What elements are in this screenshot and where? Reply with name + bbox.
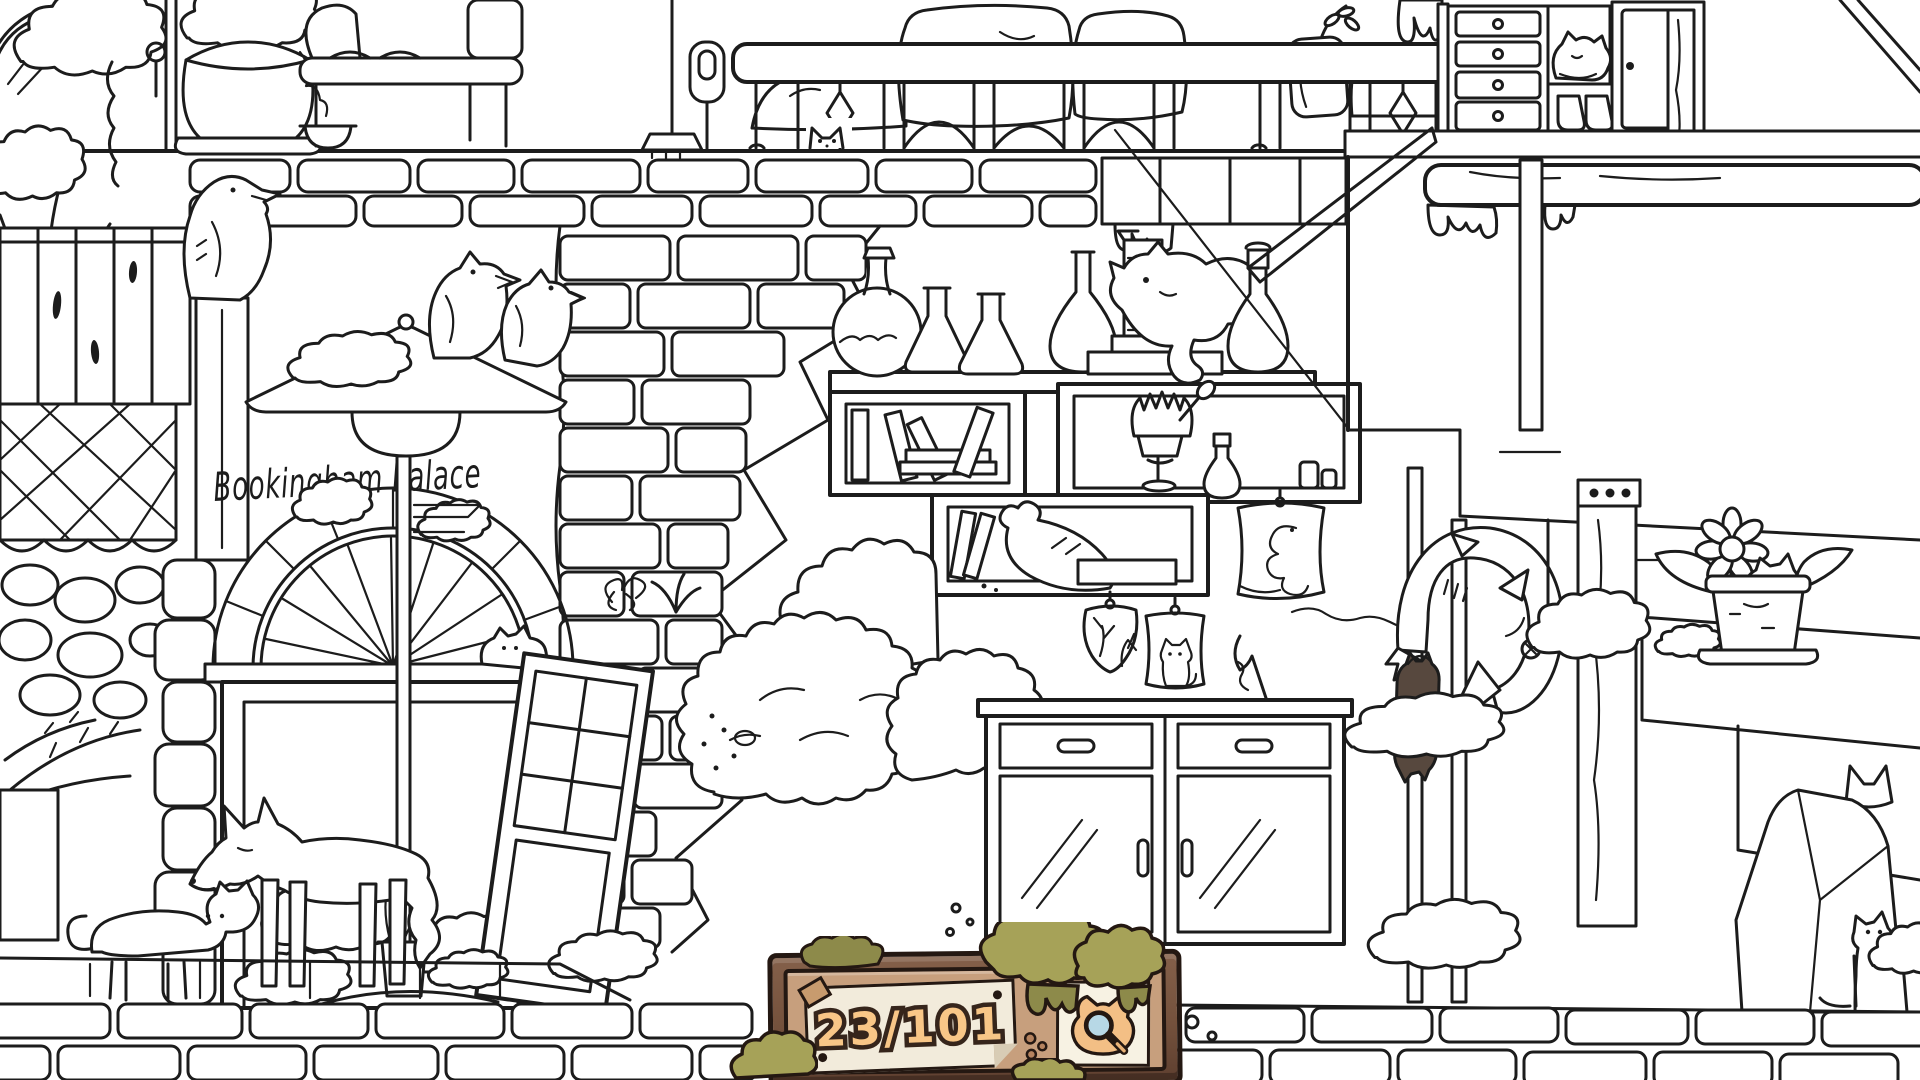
hidden-cat-balcony[interactable]: [806, 118, 852, 148]
hidden-cat-cubby[interactable]: [1548, 6, 1611, 84]
vine-strand: [107, 62, 118, 186]
erlenmeyer-flask: [959, 294, 1022, 374]
lower-plank: [0, 790, 58, 940]
hidden-cat-poster[interactable]: [1146, 598, 1204, 688]
dragon-poster: [1238, 490, 1324, 599]
raven-icon: [184, 176, 280, 300]
fern: [5, 712, 140, 800]
book-shelf: [830, 392, 1025, 495]
bench: [300, 0, 522, 146]
upper-post: [1668, 10, 1694, 150]
tool-shelf: [1058, 378, 1360, 502]
bush: [1368, 899, 1520, 968]
shield-poster: [1084, 592, 1137, 672]
plank-fence: [0, 228, 190, 404]
left-structures: [0, 126, 190, 940]
ham-shelf: [932, 495, 1208, 595]
hanging-foliage: [14, 0, 166, 75]
progress-plaque: 23/101 23/101: [767, 949, 1182, 1080]
cabinet: [947, 700, 1353, 944]
stone-pile: [0, 565, 170, 718]
ivy-clump: [0, 126, 85, 199]
brick-band: [190, 158, 1575, 251]
corner-beam: [1840, 0, 1920, 92]
awning-lattice: [0, 404, 176, 551]
magnifier-hint-button[interactable]: [1056, 980, 1150, 1066]
boots: [1558, 96, 1612, 130]
cats-found-counter: 23/101 23/101: [814, 1001, 1007, 1053]
upper-floor: [0, 0, 1920, 186]
scene-canvas: Bookingham Palace: [0, 0, 1920, 1080]
cat-magnifier-icon: [1065, 984, 1141, 1064]
bush: [1345, 693, 1504, 757]
pebbles: [1020, 1028, 1050, 1062]
plaque-panel: 23/101 23/101: [783, 965, 1166, 1075]
counter-paper-note: 23/101 23/101: [803, 979, 1017, 1075]
counter-text: 23/101: [814, 997, 1007, 1057]
game-stage: Bookingham Palace: [0, 0, 1920, 1080]
